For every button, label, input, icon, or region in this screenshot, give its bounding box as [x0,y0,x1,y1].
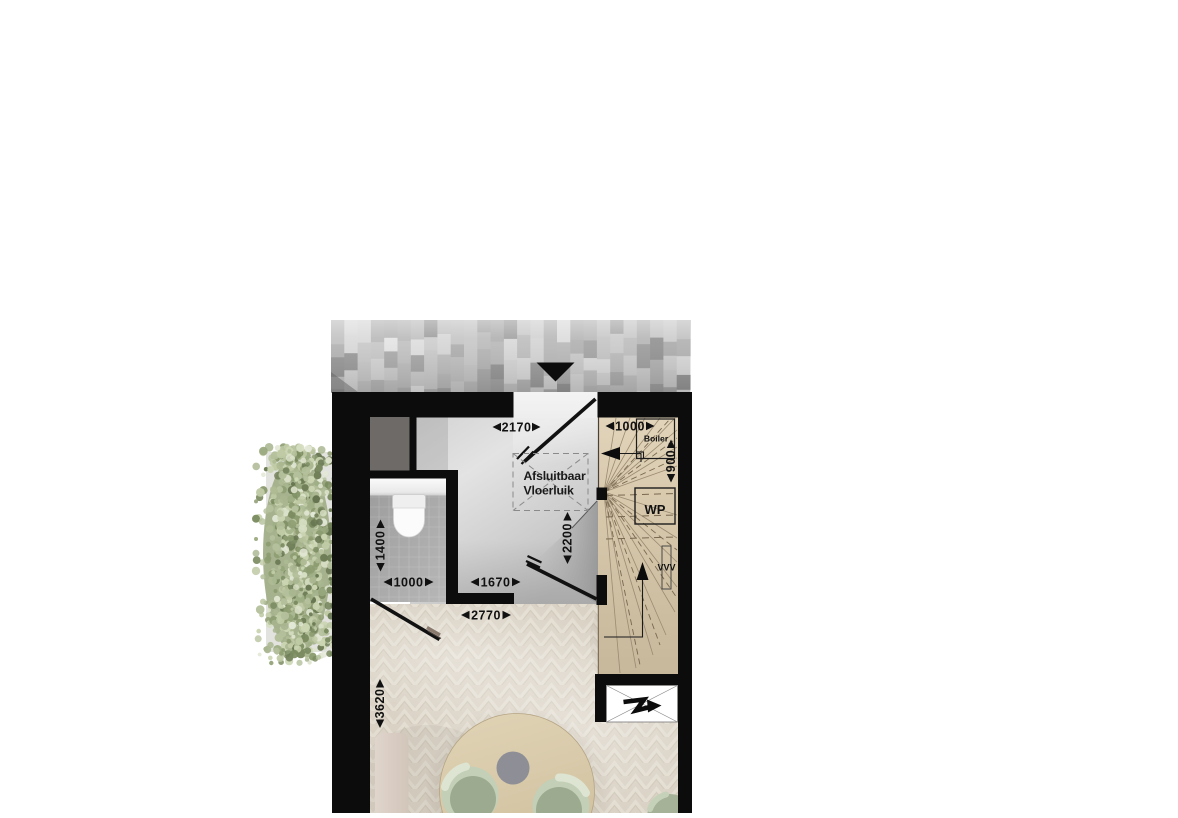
svg-text:1400: 1400 [374,531,388,561]
svg-text:1670: 1670 [481,576,511,590]
svg-text:Vloerluik: Vloerluik [524,484,574,498]
svg-text:2170: 2170 [502,421,532,435]
svg-text:1000: 1000 [615,420,645,434]
svg-text:Afsluitbaar: Afsluitbaar [524,469,586,483]
svg-text:2200: 2200 [561,523,575,553]
svg-text:VVV: VVV [657,563,675,573]
svg-text:Boiler: Boiler [644,434,669,444]
svg-text:2770: 2770 [471,609,501,623]
svg-text:3620: 3620 [373,689,387,719]
svg-text:1000: 1000 [394,576,424,590]
svg-text:WP: WP [645,502,666,517]
svg-text:900: 900 [664,450,678,472]
